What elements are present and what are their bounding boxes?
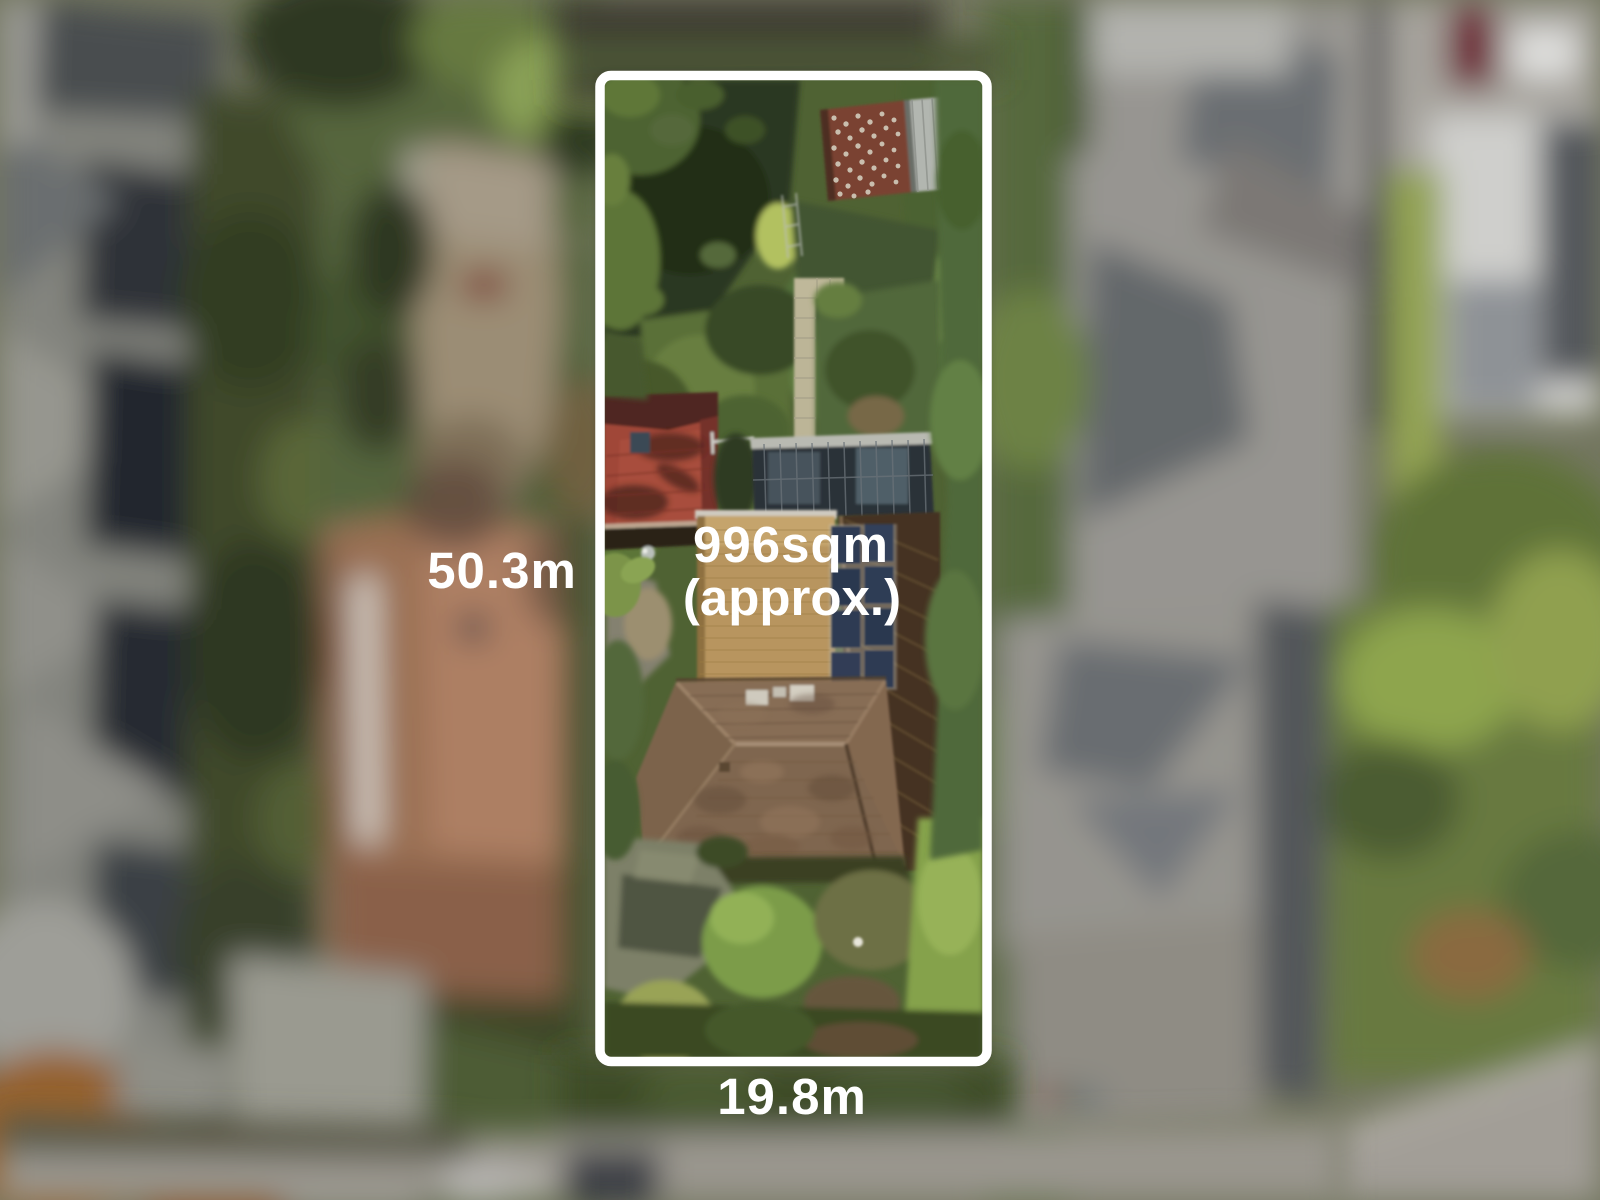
svg-text:50.3m: 50.3m [427, 542, 577, 599]
svg-text:(approx.): (approx.) [683, 569, 901, 626]
svg-text:19.8m: 19.8m [717, 1068, 867, 1125]
svg-text:996sqm: 996sqm [693, 516, 889, 573]
